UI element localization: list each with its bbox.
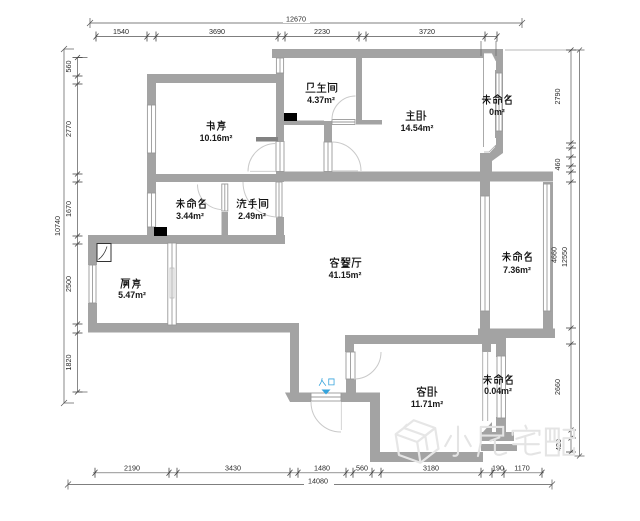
- svg-text:4.37m²: 4.37m²: [307, 95, 335, 105]
- svg-text:4660: 4660: [550, 247, 559, 263]
- svg-text:0m²: 0m²: [489, 107, 505, 117]
- svg-text:1170: 1170: [514, 463, 529, 472]
- svg-text:41.15m²: 41.15m²: [329, 270, 362, 280]
- svg-text:3180: 3180: [423, 463, 439, 472]
- svg-text:12550: 12550: [560, 247, 569, 267]
- svg-text:3720: 3720: [419, 27, 435, 36]
- svg-text:1670: 1670: [64, 201, 73, 217]
- svg-text:14080: 14080: [308, 477, 328, 486]
- svg-text:3690: 3690: [209, 27, 225, 36]
- svg-text:10.16m²: 10.16m²: [200, 133, 233, 143]
- svg-text:5.47m²: 5.47m²: [118, 290, 146, 300]
- svg-text:460: 460: [553, 159, 562, 171]
- svg-text:7.36m²: 7.36m²: [503, 265, 531, 275]
- svg-text:0.04m²: 0.04m²: [484, 386, 512, 396]
- svg-text:2230: 2230: [314, 27, 330, 36]
- svg-text:2500: 2500: [64, 276, 73, 292]
- svg-text:2770: 2770: [64, 121, 73, 137]
- svg-text:11.71m²: 11.71m²: [411, 399, 443, 409]
- svg-text:560: 560: [356, 463, 368, 472]
- svg-text:3430: 3430: [225, 463, 241, 472]
- svg-text:2660: 2660: [553, 379, 562, 395]
- svg-text:1540: 1540: [113, 27, 129, 36]
- svg-text:2.49m²: 2.49m²: [238, 211, 266, 221]
- svg-text:2190: 2190: [124, 463, 140, 472]
- svg-text:12670: 12670: [286, 15, 306, 24]
- svg-text:1480: 1480: [314, 463, 330, 472]
- svg-text:1820: 1820: [64, 355, 73, 371]
- svg-text:190: 190: [492, 463, 504, 472]
- svg-text:2790: 2790: [553, 89, 562, 105]
- svg-text:560: 560: [64, 61, 73, 73]
- svg-text:3.44m²: 3.44m²: [176, 211, 204, 221]
- svg-text:10740: 10740: [53, 216, 62, 236]
- svg-text:14.54m²: 14.54m²: [401, 123, 434, 133]
